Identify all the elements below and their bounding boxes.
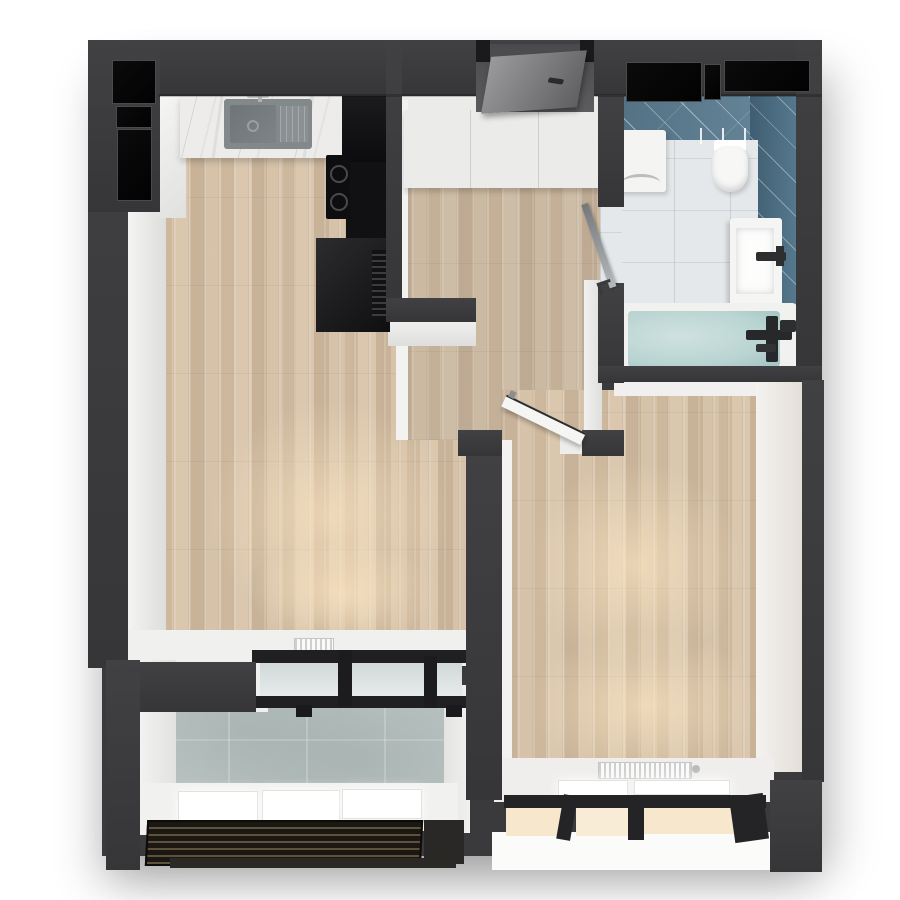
sliding-door-mullion-2	[424, 656, 437, 708]
vanity-sink	[730, 218, 782, 306]
bathtub	[618, 303, 798, 375]
balcony-rail-bottom	[170, 858, 456, 868]
bedroom-right-wall	[802, 380, 824, 782]
bay-window-mullion-2	[628, 798, 644, 840]
burner-ring-2	[330, 193, 348, 211]
entry-door-jamb-left	[476, 40, 490, 62]
entry-door-handle	[547, 77, 564, 84]
bedroom-bottom-right-wall	[770, 780, 822, 872]
left-wall-black-panel-2	[116, 106, 152, 128]
burner-ring-1	[330, 165, 348, 183]
top-wall-black-panel-2	[704, 64, 721, 100]
hall-bathroom-wall-upper	[598, 95, 624, 207]
sink-drainboard	[280, 106, 308, 142]
mixer-handle	[756, 344, 776, 352]
bay-window-glass-2	[576, 806, 630, 836]
wardrobe-seam-1	[470, 110, 471, 188]
sliding-door-mullion-1	[338, 650, 352, 706]
toilet	[712, 140, 748, 192]
sliding-door-top-rail	[252, 650, 470, 663]
vanity-basin	[736, 228, 774, 294]
kitchen-hall-partition	[386, 40, 402, 322]
bedroom-living-dividing-wall	[466, 456, 502, 800]
bedroom-sill-panel-2	[634, 780, 730, 795]
sliding-door-bottom-rail	[252, 696, 470, 708]
balcony-glass-panel-2	[262, 790, 340, 821]
sliding-door-foot-2	[446, 705, 462, 717]
vanity-faucet-base	[776, 246, 784, 266]
induction-cooktop	[326, 155, 350, 219]
shower-mixer-body	[766, 316, 778, 362]
bedroom-door-wall-left-stub	[458, 430, 502, 456]
left-wall-black-panel-1	[112, 60, 156, 104]
bay-window-corner-frame	[729, 793, 769, 843]
kitchen-sink	[224, 99, 312, 149]
top-wall-black-panel-1	[626, 62, 702, 102]
bay-window-glass-3	[644, 806, 734, 834]
toilet-bowl	[712, 146, 748, 192]
top-wall-black-panel-3	[724, 60, 810, 92]
left-wall-black-panel-3	[117, 129, 152, 201]
bedroom-radiator	[598, 762, 692, 779]
bedroom-radiator-valve	[692, 765, 700, 773]
kitchen-hall-partition-return	[386, 298, 476, 322]
shower-head	[780, 320, 796, 332]
corridor-wall-face	[388, 318, 476, 346]
sink-drain	[247, 120, 259, 132]
entry-door-leaf	[481, 50, 587, 114]
hall-wardrobe	[404, 110, 602, 188]
balcony-left-wall	[106, 660, 140, 870]
wardrobe-seam-2	[538, 110, 539, 188]
sliding-door-foot-1	[296, 705, 312, 717]
balcony-glass-panel-3	[342, 789, 422, 819]
floor-plan-render	[0, 0, 900, 900]
kitchen-counter-dark	[346, 162, 390, 238]
washer-door-arc	[622, 174, 660, 191]
bay-window-glass-1	[506, 806, 564, 836]
bedroom-door-wall-right-stub	[582, 430, 624, 456]
balcony-glass-panel-1	[178, 791, 258, 823]
bathroom-shelf-tick-1	[700, 128, 702, 144]
bedroom-right-wall-face	[756, 380, 807, 772]
bathroom-bedroom-wall	[598, 366, 822, 382]
